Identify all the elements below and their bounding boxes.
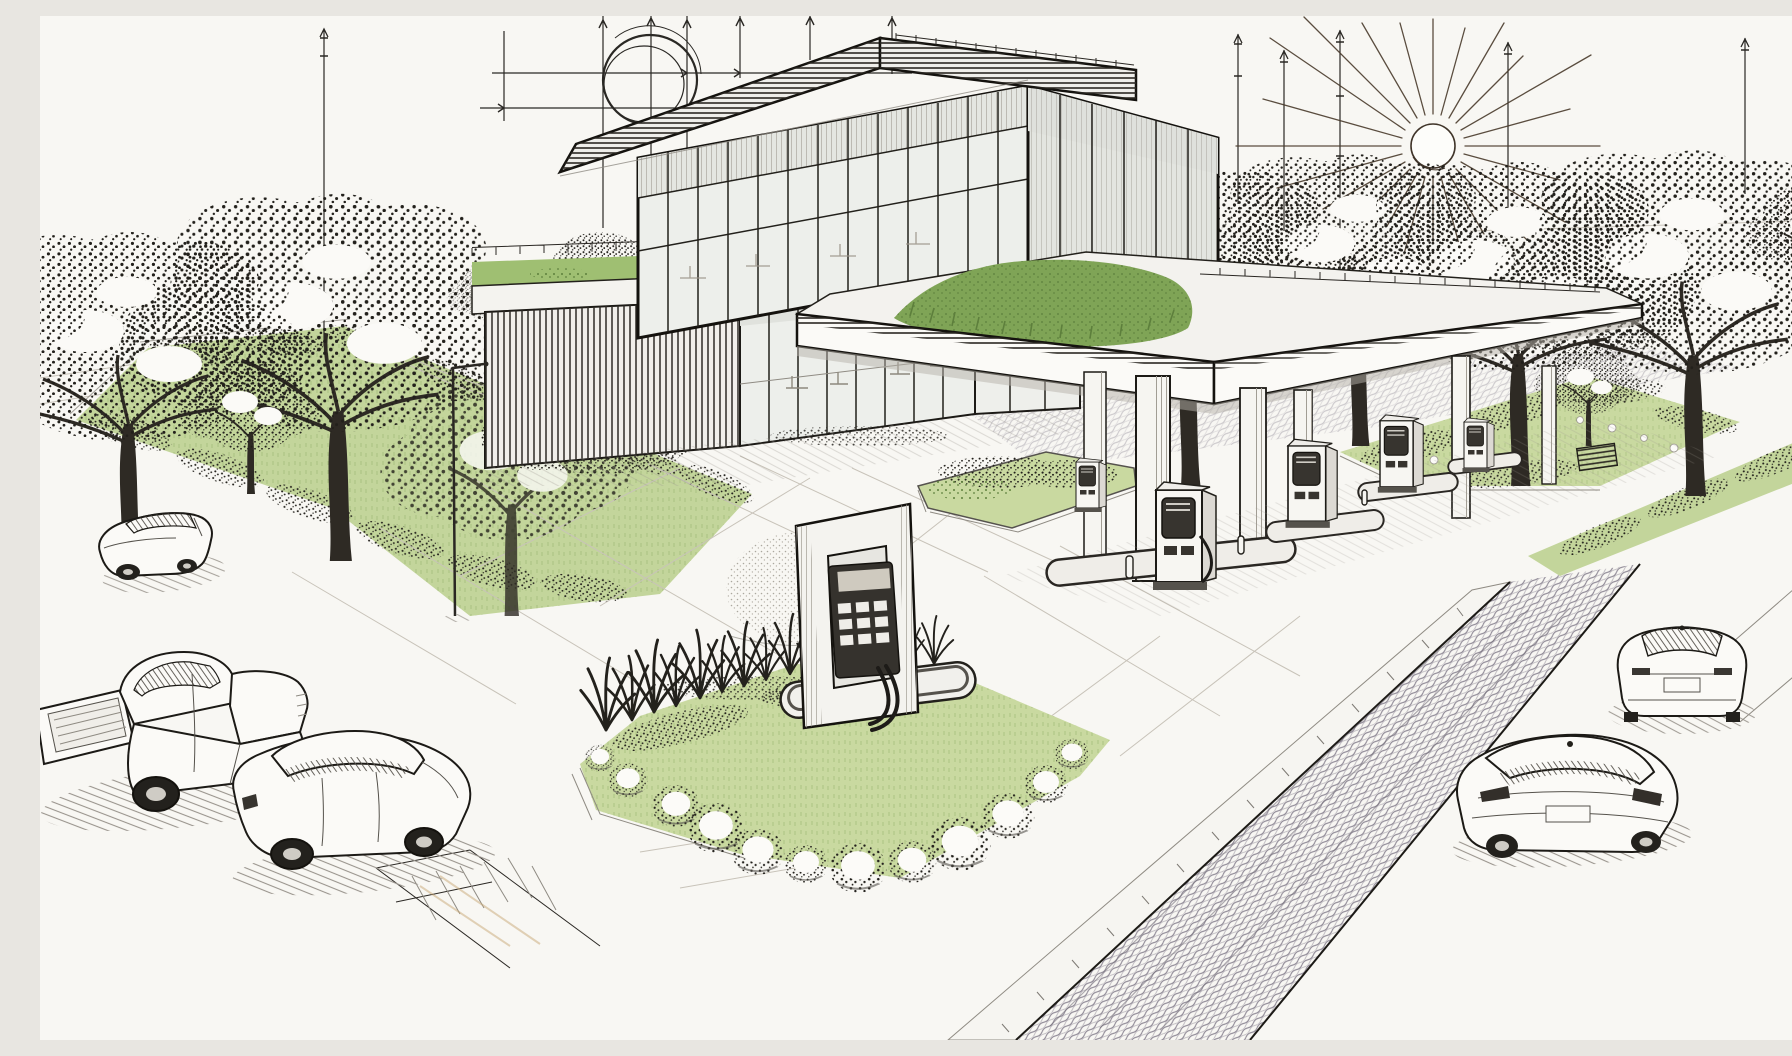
sun-disc (1411, 124, 1455, 168)
fuel-dispenser (1463, 418, 1495, 472)
car-sedan-rear-far (1608, 626, 1756, 735)
sketch-canvas (40, 16, 1792, 1040)
fuel-dispenser (1075, 458, 1107, 512)
gas-station-sketch (40, 16, 1792, 1040)
fuel-dispenser (1153, 482, 1216, 590)
fuel-dispenser (1286, 439, 1338, 528)
service-box (1577, 443, 1618, 470)
charger-panel (828, 562, 900, 678)
fuel-dispenser (1378, 415, 1423, 493)
